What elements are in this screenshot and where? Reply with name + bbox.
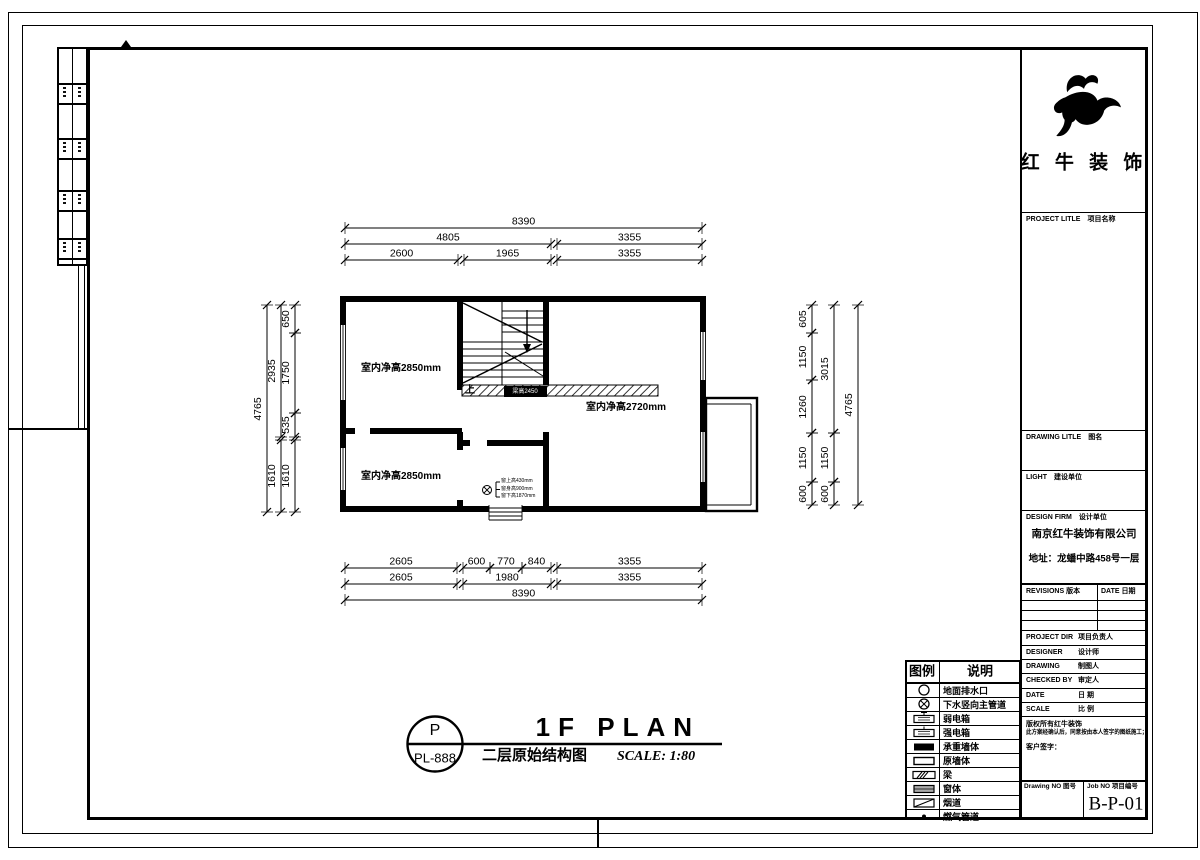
dim-label: 3355 bbox=[618, 249, 641, 260]
dim-label: 1610 bbox=[281, 464, 292, 487]
drawing-title-label: DRAWING LITLE 图名 bbox=[1026, 434, 1102, 441]
room-label: 室内净高2850mm bbox=[361, 472, 441, 482]
dim-label: 3355 bbox=[618, 573, 641, 584]
stair-up-label: 上 bbox=[465, 386, 475, 396]
dim-label: 3355 bbox=[618, 557, 641, 568]
drain-pipe-symbol-icon bbox=[483, 482, 501, 497]
dim-label: 1150 bbox=[798, 345, 809, 368]
legend-header-symbol: 图例 bbox=[909, 665, 935, 678]
frame-mark-icon bbox=[121, 40, 131, 47]
dim-label: 1260 bbox=[798, 395, 809, 418]
legend-row: 梁 bbox=[907, 768, 1019, 782]
revisions-label: REVISIONS 版本 bbox=[1026, 588, 1080, 595]
caption-title-zh: 二层原始结构图 bbox=[482, 748, 587, 763]
titleblock-field-zh: 制图人 bbox=[1078, 663, 1099, 670]
job-no-value: B-P-01 bbox=[1089, 795, 1144, 814]
dim-label: 770 bbox=[497, 557, 515, 568]
dim-label: 2605 bbox=[389, 557, 412, 568]
drawing-no-label: Drawing NO 图号 bbox=[1024, 784, 1076, 791]
dim-label: 4765 bbox=[253, 397, 264, 420]
caption-scale: SCALE: 1:80 bbox=[617, 750, 695, 764]
strong-current-box-icon bbox=[907, 726, 940, 739]
caption-tag-top: P bbox=[430, 723, 441, 739]
beam-hatch bbox=[462, 385, 658, 396]
legend-label: 地面排水口 bbox=[940, 684, 988, 697]
titleblock-field-zh: 项目负责人 bbox=[1078, 634, 1113, 641]
legend-label: 下水竖向主管道 bbox=[940, 698, 1006, 711]
design-firm-label: DESIGN FIRM 设计单位 bbox=[1026, 514, 1107, 521]
legend-row: 原墙体 bbox=[907, 754, 1019, 768]
legend-label: 承重墙体 bbox=[940, 740, 979, 753]
dim-label: 2605 bbox=[389, 573, 412, 584]
notes-line: 版权所有红牛装饰 bbox=[1026, 721, 1082, 728]
legend-label: 强电箱 bbox=[940, 726, 970, 739]
legend-label: 烟道 bbox=[940, 796, 961, 809]
flue-icon bbox=[907, 796, 940, 809]
dim-label: 4765 bbox=[844, 393, 855, 416]
legend-row: 强电箱 bbox=[907, 726, 1019, 740]
dim-label: 535 bbox=[281, 416, 292, 434]
dim-label: 650 bbox=[281, 310, 292, 328]
titleblock-field-en: PROJECT DIR bbox=[1026, 634, 1073, 641]
gas-pipe-icon bbox=[907, 810, 940, 823]
window-note: 窗下高1870mm bbox=[501, 494, 535, 499]
titleblock-field-en: DESIGNER bbox=[1026, 649, 1063, 656]
balcony bbox=[706, 398, 757, 511]
drawing-sheet: 室内净高2850mm 室内净高2850mm 室内净高2720mm 上 梁高245… bbox=[0, 0, 1200, 860]
dim-label: 1750 bbox=[281, 361, 292, 384]
dim-label: 8390 bbox=[512, 589, 535, 600]
beam-icon bbox=[907, 768, 940, 781]
legend-row: 下水竖向主管道 bbox=[907, 698, 1019, 712]
dim-label: 2935 bbox=[267, 359, 278, 382]
titleblock-field-en: DRAWING bbox=[1026, 663, 1060, 670]
notes-line: 客户签字： bbox=[1026, 744, 1061, 751]
dim-label: 3355 bbox=[618, 233, 641, 244]
dim-label: 840 bbox=[528, 557, 546, 568]
legend-label: 窗体 bbox=[940, 782, 961, 795]
drain-circle-icon bbox=[907, 684, 940, 697]
window-note: 窗上高430mm bbox=[501, 479, 533, 484]
dimension-lines bbox=[261, 222, 864, 606]
dim-label: 600 bbox=[820, 485, 831, 503]
titleblock-field-zh: 审定人 bbox=[1078, 677, 1099, 684]
legend-label: 原墙体 bbox=[940, 754, 970, 767]
dim-label: 2600 bbox=[390, 249, 413, 260]
client-label: LIGHT 建设单位 bbox=[1026, 474, 1082, 481]
legend-label: 梁 bbox=[940, 768, 952, 781]
weak-current-box-icon bbox=[907, 712, 940, 725]
legend-row: 烟道 bbox=[907, 796, 1019, 810]
legend-row: 地面排水口 bbox=[907, 684, 1019, 698]
dim-label: 600 bbox=[798, 485, 809, 503]
legend-row: 弱电箱 bbox=[907, 712, 1019, 726]
window-note: 窗身高900mm bbox=[501, 487, 533, 492]
titleblock-field-zh: 设计师 bbox=[1078, 649, 1099, 656]
firm-address: 地址：龙蟠中路458号一层 bbox=[1029, 554, 1140, 564]
dim-label: 3015 bbox=[820, 357, 831, 380]
caption-title-en: 1F PLAN bbox=[536, 714, 700, 740]
project-title-label: PROJECT LITLE 项目名称 bbox=[1026, 216, 1115, 223]
firm-name: 南京红牛装饰有限公司 bbox=[1032, 529, 1137, 540]
company-name: 红 牛 装 饰 bbox=[1021, 154, 1148, 173]
dim-label: 1150 bbox=[798, 446, 809, 469]
titleblock-field-zh: 日 期 bbox=[1078, 692, 1094, 699]
dim-label: 600 bbox=[468, 557, 486, 568]
caption-tag-no: PL-888 bbox=[414, 752, 456, 765]
notes-line: 此方案经确认后，同意按由本人签字的图纸施工； bbox=[1026, 730, 1147, 736]
legend-row: 承重墙体 bbox=[907, 740, 1019, 754]
legend-rows: 地面排水口下水竖向主管道弱电箱强电箱承重墙体原墙体梁窗体烟道燃气管道 bbox=[907, 684, 1019, 818]
company-logo-icon bbox=[1042, 66, 1126, 152]
titleblock-field-en: DATE bbox=[1026, 692, 1045, 699]
beam-tag-label: 梁高2450 bbox=[512, 389, 537, 395]
dim-label: 605 bbox=[798, 310, 809, 328]
legend-row: 窗体 bbox=[907, 782, 1019, 796]
dim-label: 1610 bbox=[267, 464, 278, 487]
bearing-wall-icon bbox=[907, 740, 940, 753]
revisions-date-label: DATE 日期 bbox=[1101, 588, 1135, 595]
room-label: 室内净高2720mm bbox=[586, 403, 666, 413]
room-label: 室内净高2850mm bbox=[361, 364, 441, 374]
dim-label: 1965 bbox=[496, 249, 519, 260]
titleblock-field-zh: 比 例 bbox=[1078, 706, 1094, 713]
staircase bbox=[462, 302, 543, 385]
job-no-label: Job NO 项目编号 bbox=[1087, 784, 1138, 791]
legend-label: 弱电箱 bbox=[940, 712, 970, 725]
window-icon bbox=[907, 782, 940, 795]
dim-label: 1980 bbox=[495, 573, 518, 584]
legend-label: 燃气管道 bbox=[940, 810, 979, 823]
drain-pipe-icon bbox=[907, 698, 940, 711]
dim-label: 4805 bbox=[436, 233, 459, 244]
dim-label: 8390 bbox=[512, 217, 535, 228]
original-wall-icon bbox=[907, 754, 940, 767]
legend-row: 燃气管道 bbox=[907, 810, 1019, 823]
dim-label: 1150 bbox=[820, 446, 831, 469]
titleblock-field-en: CHECKED BY bbox=[1026, 677, 1072, 684]
legend-header-desc: 说明 bbox=[967, 665, 993, 678]
titleblock-field-en: SCALE bbox=[1026, 706, 1050, 713]
